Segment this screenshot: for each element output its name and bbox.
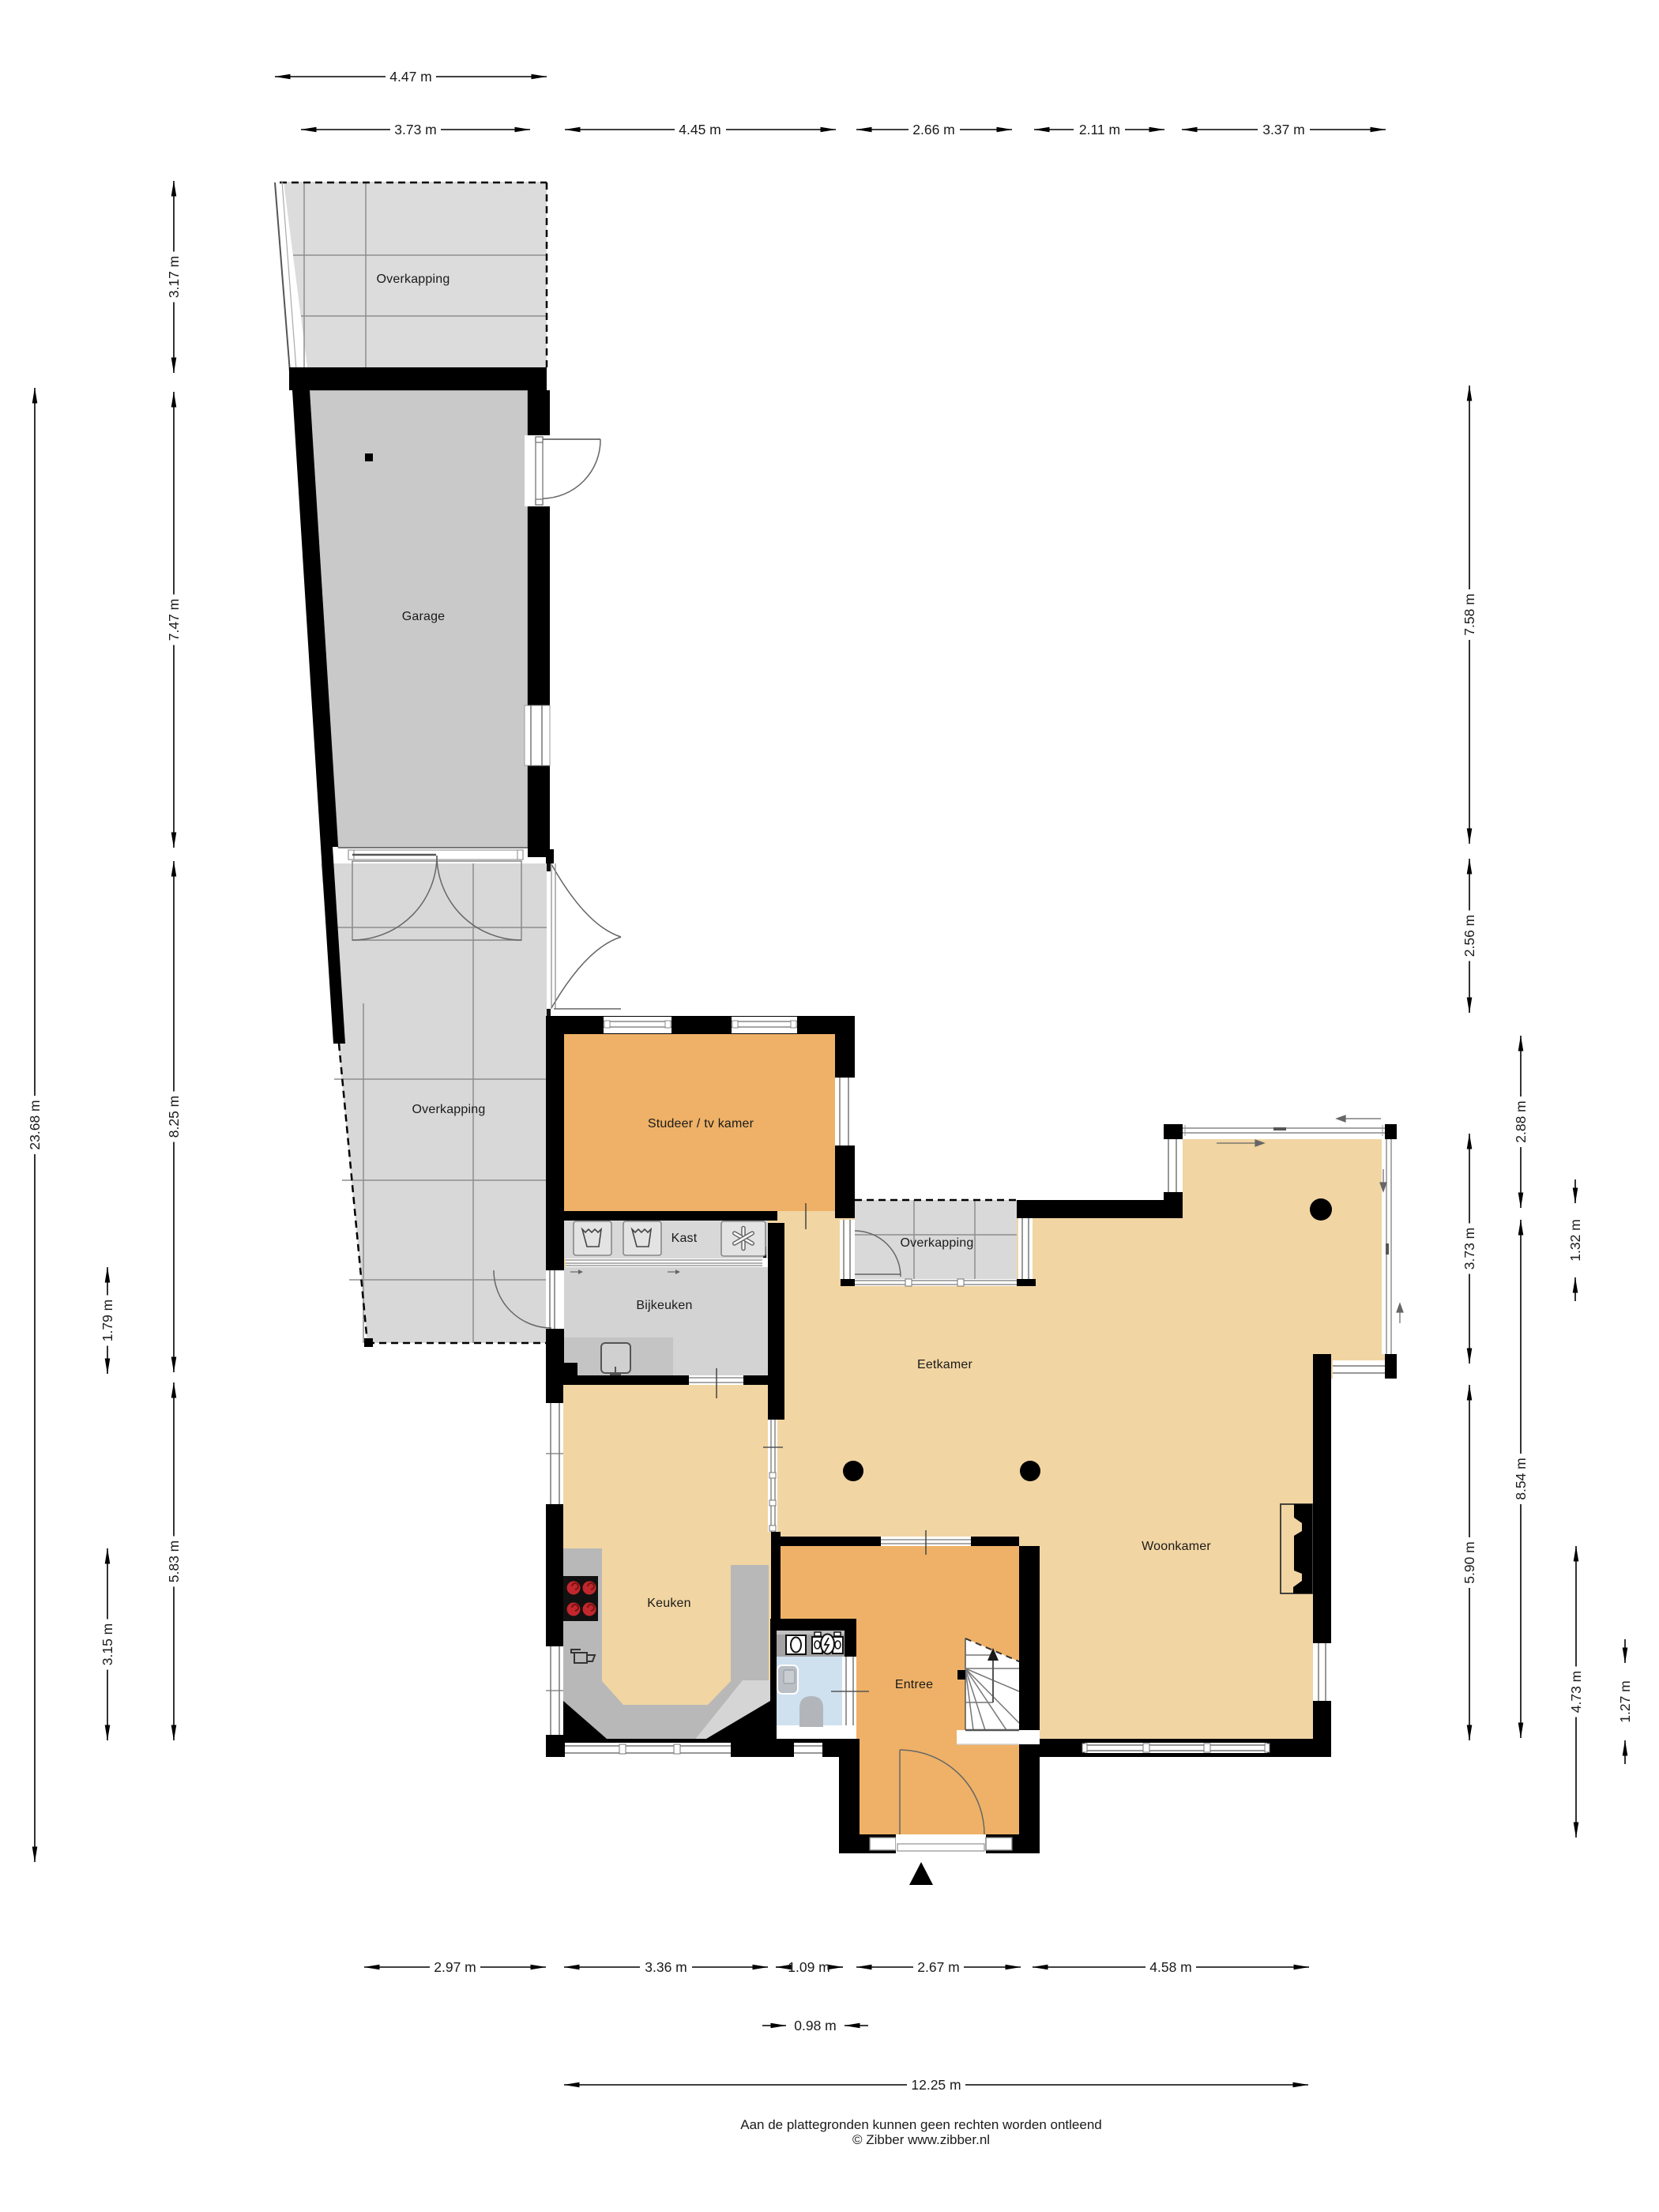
svg-text:Woonkamer: Woonkamer	[1142, 1540, 1211, 1553]
svg-text:12.25 m: 12.25 m	[911, 2077, 961, 2093]
svg-text:4.45 m: 4.45 m	[679, 122, 721, 137]
svg-text:1.27 m: 1.27 m	[1617, 1680, 1633, 1723]
svg-text:Keuken: Keuken	[647, 1597, 690, 1610]
svg-text:2.97 m: 2.97 m	[434, 1959, 476, 1975]
svg-text:23.68 m: 23.68 m	[27, 1100, 43, 1149]
svg-text:Kast: Kast	[671, 1232, 698, 1245]
svg-text:7.47 m: 7.47 m	[166, 599, 182, 641]
svg-text:2.66 m: 2.66 m	[912, 122, 955, 137]
svg-text:7.58 m: 7.58 m	[1461, 593, 1477, 636]
svg-text:8.54 m: 8.54 m	[1513, 1458, 1529, 1500]
svg-text:Aan de plattegronden kunnen ge: Aan de plattegronden kunnen geen rechten…	[740, 2117, 1101, 2132]
svg-text:1.79 m: 1.79 m	[100, 1300, 115, 1342]
svg-text:3.36 m: 3.36 m	[645, 1959, 687, 1975]
svg-text:2.11 m: 2.11 m	[1079, 122, 1120, 137]
svg-text:Overkapping: Overkapping	[377, 273, 450, 286]
svg-text:1.32 m: 1.32 m	[1567, 1219, 1583, 1262]
svg-text:5.90 m: 5.90 m	[1461, 1541, 1477, 1584]
svg-text:4.73 m: 4.73 m	[1568, 1671, 1584, 1714]
svg-text:Entree: Entree	[895, 1678, 933, 1691]
svg-text:3.73 m: 3.73 m	[1461, 1228, 1477, 1270]
svg-text:3.17 m: 3.17 m	[166, 256, 182, 299]
svg-text:0.98 m: 0.98 m	[794, 2018, 837, 2033]
svg-text:3.15 m: 3.15 m	[100, 1623, 115, 1666]
svg-text:Studeer / tv kamer: Studeer / tv kamer	[648, 1117, 754, 1130]
svg-text:3.73 m: 3.73 m	[394, 122, 437, 137]
svg-text:1.09 m: 1.09 m	[788, 1959, 830, 1975]
svg-text:Overkapping: Overkapping	[901, 1236, 974, 1250]
svg-text:4.58 m: 4.58 m	[1149, 1959, 1192, 1975]
svg-text:© Zibber www.zibber.nl: © Zibber www.zibber.nl	[852, 2132, 990, 2147]
svg-text:Eetkamer: Eetkamer	[917, 1358, 973, 1371]
svg-text:2.88 m: 2.88 m	[1513, 1100, 1529, 1143]
svg-text:2.56 m: 2.56 m	[1461, 915, 1477, 957]
svg-text:Bijkeuken: Bijkeuken	[636, 1299, 692, 1312]
svg-text:Garage: Garage	[402, 610, 446, 623]
svg-text:8.25 m: 8.25 m	[166, 1096, 182, 1138]
svg-text:Overkapping: Overkapping	[412, 1103, 486, 1116]
svg-text:5.83 m: 5.83 m	[166, 1540, 182, 1583]
svg-text:4.47 m: 4.47 m	[389, 69, 432, 85]
svg-text:2.67 m: 2.67 m	[917, 1959, 960, 1975]
svg-text:3.37 m: 3.37 m	[1262, 122, 1305, 137]
